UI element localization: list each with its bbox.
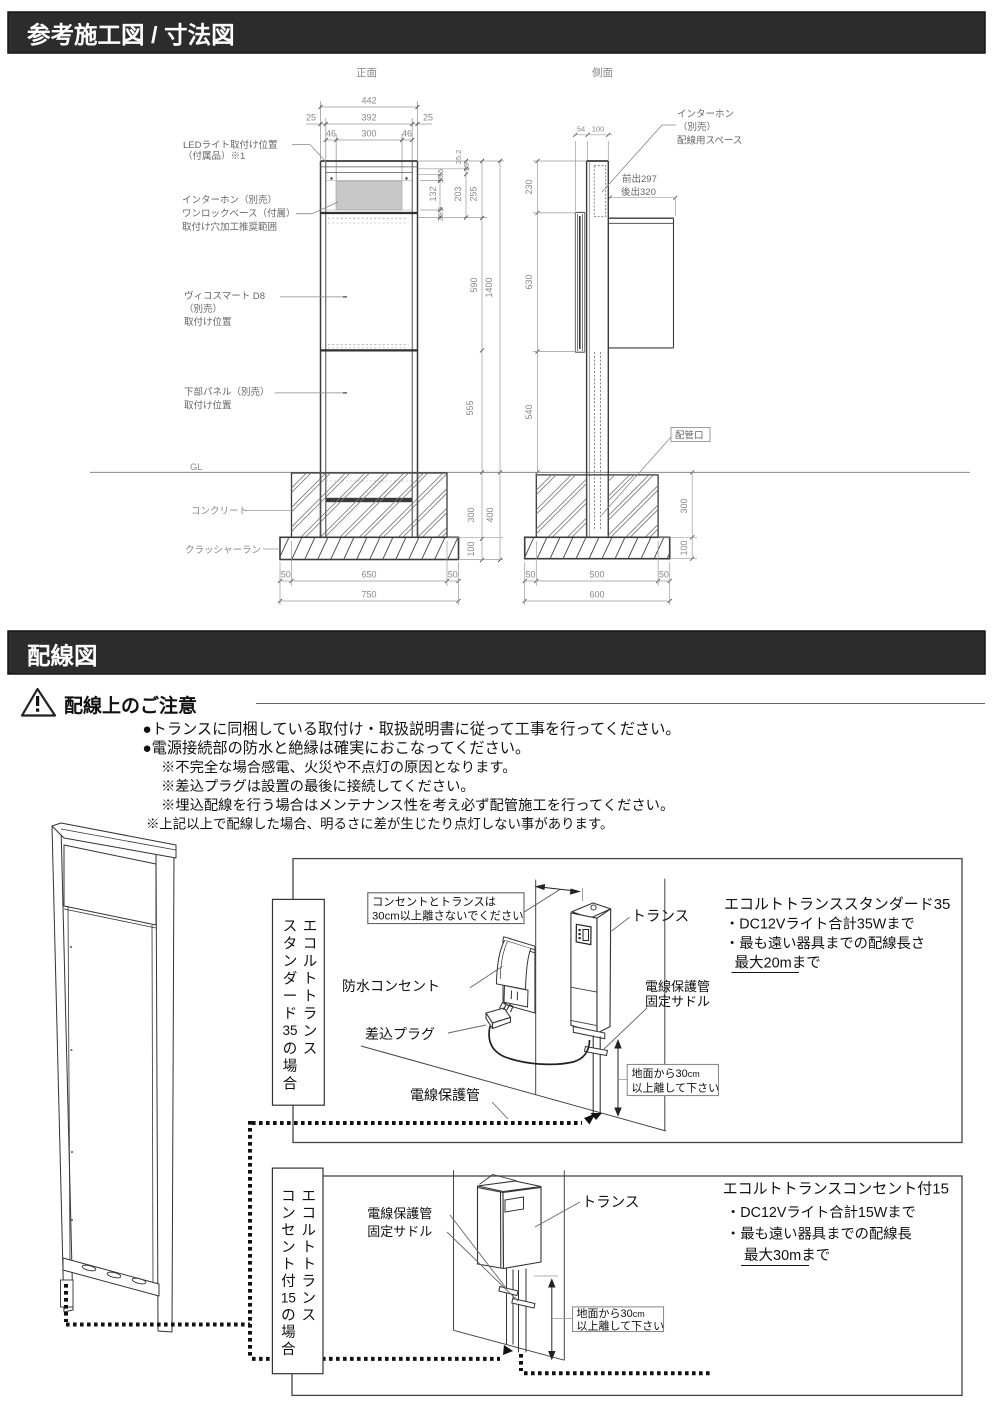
svg-text:ト: ト [303, 989, 318, 1005]
svg-text:以上離して下さい: 以上離して下さい [577, 1319, 665, 1333]
svg-text:650: 650 [361, 570, 376, 580]
svg-text:30cm以上離さないでください: 30cm以上離さないでください [372, 909, 524, 923]
svg-text:コ: コ [303, 937, 318, 953]
svg-text:タ: タ [283, 936, 298, 953]
svg-text:ト: ト [301, 1257, 316, 1273]
svg-text:ー: ー [283, 989, 298, 1005]
svg-text:インターホン: インターホン [677, 109, 734, 120]
svg-text:エコルトトランスコンセント付15: エコルトトランスコンセント付15 [723, 1181, 949, 1198]
svg-text:差込プラグ: 差込プラグ [365, 1026, 435, 1042]
svg-text:ン: ン [283, 954, 298, 970]
svg-text:取付け位置: 取付け位置 [184, 316, 232, 328]
svg-text:ト: ト [303, 972, 318, 988]
svg-text:590: 590 [469, 277, 479, 292]
svg-text:ワンロックベース（付属）: ワンロックベース（付属） [182, 208, 296, 220]
svg-text:LEDライト取付け位置: LEDライト取付け位置 [183, 139, 277, 151]
svg-text:●電源接続部の防水と絶縁は確実におこなってください。: ●電源接続部の防水と絶縁は確実におこなってください。 [143, 740, 531, 757]
svg-text:50: 50 [448, 570, 458, 580]
svg-text:セ: セ [281, 1223, 296, 1239]
svg-text:ヴィコスマート D8: ヴィコスマート D8 [184, 290, 265, 302]
svg-text:255: 255 [469, 186, 479, 201]
svg-text:・DC12Vライト合計35Wまで: ・DC12Vライト合計35Wまで [725, 916, 915, 933]
svg-text:750: 750 [361, 590, 376, 600]
svg-text:ス: ス [283, 919, 298, 935]
svg-text:400: 400 [485, 507, 495, 522]
svg-text:230: 230 [524, 179, 534, 194]
svg-text:※不完全な場合感電、火災や不点灯の原因となります。: ※不完全な場合感電、火災や不点灯の原因となります。 [161, 758, 517, 776]
svg-text:トランス: トランス [582, 1195, 640, 1211]
svg-text:地面から30cm: 地面から30cm [632, 1067, 700, 1080]
svg-text:地面から30cm: 地面から30cm [577, 1307, 645, 1320]
svg-text:配線上のご注意: 配線上のご注意 [64, 694, 197, 717]
svg-text:・最も遠い器具までの配線長: ・最も遠い器具までの配線長 [726, 1226, 912, 1243]
svg-text:前出297: 前出297 [622, 173, 657, 185]
svg-text:エコルトトランススタンダード35: エコルトトランススタンダード35 [724, 896, 950, 913]
svg-text:GL: GL [190, 462, 203, 473]
svg-text:※上記以上で配線した場合、明るさに差が生じたり点灯しない事が: ※上記以上で配線した場合、明るさに差が生じたり点灯しない事があります。 [146, 816, 613, 832]
svg-text:コンクリート: コンクリート [191, 506, 248, 517]
svg-text:ス: ス [303, 1042, 318, 1058]
svg-text:トランス: トランス [631, 909, 689, 925]
svg-text:25: 25 [423, 113, 433, 123]
svg-text:配線図: 配線図 [27, 642, 98, 669]
svg-text:（別売）: （別売） [678, 121, 716, 133]
svg-text:46: 46 [402, 129, 412, 139]
svg-text:コ: コ [281, 1189, 296, 1205]
svg-text:固定サドル: 固定サドル [367, 1224, 432, 1239]
svg-text:エ: エ [301, 1189, 316, 1205]
svg-text:防水コンセント: 防水コンセント [342, 978, 440, 994]
svg-text:●トランスに同梱している取付け・取扱説明書に従って工事を行っ: ●トランスに同梱している取付け・取扱説明書に従って工事を行ってください。 [143, 721, 681, 738]
svg-text:下部パネル（別売）: 下部パネル（別売） [184, 386, 270, 398]
svg-text:ス: ス [301, 1308, 316, 1324]
svg-text:ン: ン [281, 1240, 296, 1256]
svg-text:ン: ン [301, 1291, 316, 1307]
svg-text:付: 付 [281, 1273, 296, 1290]
svg-text:場: 場 [281, 1324, 296, 1341]
svg-text:1400: 1400 [484, 277, 494, 297]
svg-text:ド: ド [283, 1007, 298, 1023]
svg-text:25: 25 [306, 113, 316, 123]
svg-text:100: 100 [466, 541, 476, 556]
svg-text:電線保護管: 電線保護管 [410, 1087, 480, 1103]
svg-text:正面: 正面 [356, 67, 377, 79]
svg-text:50: 50 [281, 570, 291, 580]
svg-text:（別売）: （別売） [184, 303, 222, 315]
svg-text:500: 500 [589, 570, 604, 580]
svg-text:インターホン（別売）: インターホン（別売） [182, 194, 277, 206]
svg-text:15: 15 [281, 1291, 296, 1306]
svg-text:※差込プラグは設置の最後に接続してください。: ※差込プラグは設置の最後に接続してください。 [161, 778, 475, 795]
svg-text:100: 100 [592, 125, 605, 134]
svg-text:ン: ン [303, 1024, 318, 1040]
svg-text:・最も遠い器具までの配線長さ: ・最も遠い器具までの配線長さ [725, 935, 925, 952]
svg-text:※埋込配線を行う場合はメンテナンス性を考え必ず配管施工を行っ: ※埋込配線を行う場合はメンテナンス性を考え必ず配管施工を行ってください。 [161, 797, 674, 814]
svg-text:300: 300 [679, 498, 689, 513]
svg-text:54: 54 [577, 125, 585, 134]
svg-text:取付け位置: 取付け位置 [184, 400, 232, 412]
svg-text:（付属品）※1: （付属品）※1 [183, 150, 245, 162]
svg-text:・DC12Vライト合計15Wまで: ・DC12Vライト合計15Wまで [726, 1204, 916, 1221]
svg-text:203: 203 [453, 186, 463, 201]
svg-text:最大20mまで: 最大20mまで [735, 955, 821, 972]
svg-text:固定サドル: 固定サドル [645, 994, 710, 1009]
svg-text:35.5: 35.5 [436, 169, 445, 184]
svg-text:540: 540 [524, 404, 534, 419]
svg-text:合: 合 [283, 1076, 298, 1093]
svg-text:配管口: 配管口 [675, 430, 704, 442]
svg-text:ラ: ラ [301, 1274, 316, 1290]
svg-text:側面: 側面 [592, 66, 613, 79]
svg-text:300: 300 [361, 129, 376, 139]
svg-text:35: 35 [282, 1023, 297, 1038]
svg-text:50: 50 [659, 570, 669, 580]
svg-text:600: 600 [589, 590, 604, 600]
svg-text:以上離して下さい: 以上離して下さい [632, 1081, 720, 1095]
svg-text:の: の [281, 1308, 296, 1324]
svg-text:電線保護管: 電線保護管 [367, 1206, 432, 1221]
svg-text:クラッシャーラン: クラッシャーラン [185, 545, 261, 556]
svg-text:最大30mまで: 最大30mまで [744, 1247, 830, 1264]
svg-text:132: 132 [428, 186, 438, 201]
svg-text:の: の [283, 1042, 298, 1058]
svg-text:電線保護管: 電線保護管 [645, 979, 710, 994]
svg-text:50: 50 [525, 570, 535, 580]
svg-text:ル: ル [303, 954, 318, 970]
svg-text:場: 場 [283, 1058, 298, 1075]
svg-text:25: 25 [462, 163, 471, 171]
svg-text:ト: ト [281, 1257, 296, 1273]
svg-text:ダ: ダ [283, 971, 298, 988]
svg-text:コンセントとトランスは: コンセントとトランスは [372, 896, 496, 909]
svg-text:ト: ト [301, 1240, 316, 1256]
svg-text:ル: ル [301, 1223, 316, 1239]
svg-text:ン: ン [281, 1206, 296, 1222]
svg-text:合: 合 [281, 1341, 296, 1358]
svg-text:配線用スペース: 配線用スペース [677, 135, 742, 147]
svg-text:555: 555 [465, 400, 475, 415]
svg-text:35.2: 35.2 [454, 150, 463, 165]
svg-text:コ: コ [301, 1206, 316, 1222]
svg-text:取付け穴加工推奨範囲: 取付け穴加工推奨範囲 [182, 221, 277, 233]
svg-text:442: 442 [361, 96, 376, 106]
svg-text:ラ: ラ [303, 1007, 318, 1023]
svg-text:300: 300 [466, 507, 476, 522]
svg-text:エ: エ [303, 919, 318, 935]
svg-text:後出320: 後出320 [621, 186, 656, 198]
svg-text:46: 46 [326, 129, 336, 139]
svg-text:100: 100 [679, 540, 689, 555]
svg-text:392: 392 [361, 113, 376, 123]
svg-text:参考施工図 / 寸法図: 参考施工図 / 寸法図 [27, 21, 235, 48]
svg-text:630: 630 [524, 274, 534, 289]
